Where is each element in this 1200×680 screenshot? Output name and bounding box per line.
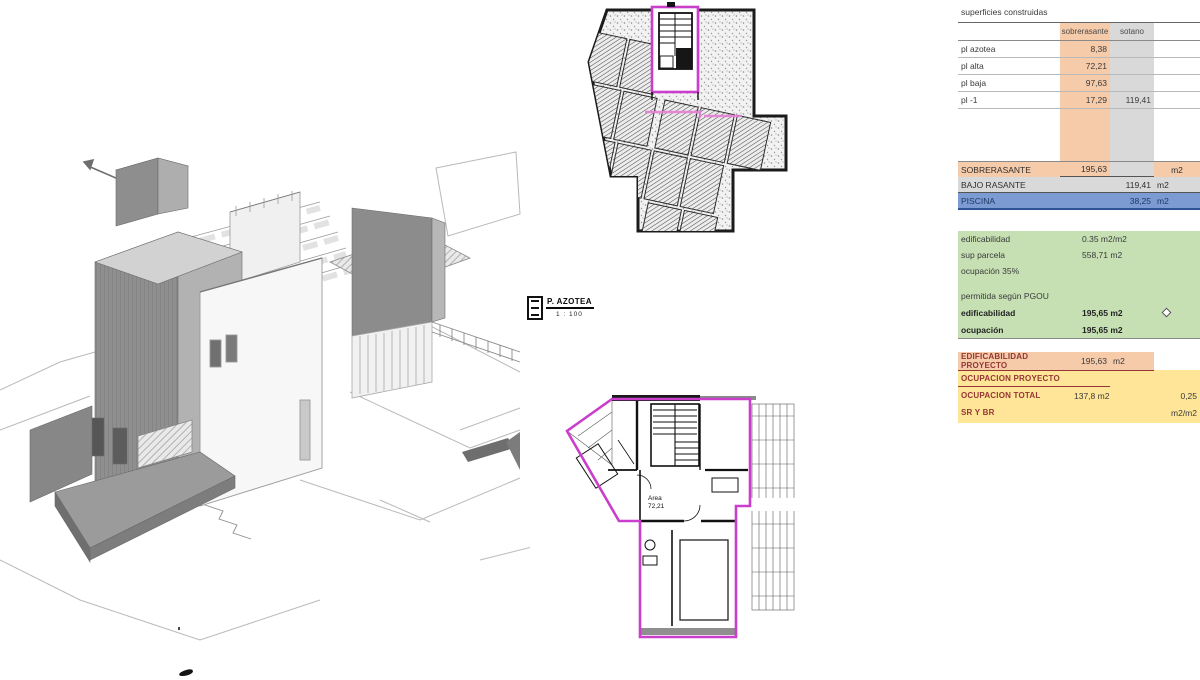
floor-value-sobrerasante[interactable]: 17,29 [1060,92,1110,108]
empty-cell [1060,404,1154,421]
col-header-sotano[interactable]: sotano [1110,23,1154,40]
normativa-value[interactable]: 195,65 m2 [1060,321,1154,338]
empty-cell [1060,193,1110,208]
col-header-sobrerasante[interactable]: sobrerasante [1060,23,1110,40]
proyecto-label[interactable]: OCUPACION TOTAL [958,387,1060,404]
floor-value-sobrerasante[interactable]: 97,63 [1060,75,1110,91]
empty-cell [1060,177,1110,192]
roof-box [116,158,188,226]
floor-value-sotano[interactable]: 119,41 [1110,92,1154,108]
proyecto-value[interactable]: 137,8 m2 [1060,387,1154,404]
plan-scale: 1 : 100 [556,311,594,318]
axonometric-3d-view [0,150,530,680]
empty-cell [1154,92,1200,108]
normativa-label[interactable]: permitida según PGOU [958,288,1060,304]
normativa-value[interactable] [1060,263,1154,279]
proyecto-label[interactable]: OCUPACION PROYECTO [958,370,1110,387]
table-row: pl azotea 8,38 [958,41,1200,58]
empty-cell [1154,75,1200,91]
spacer-row [958,109,1200,161]
floor-label[interactable]: pl baja [958,75,1060,91]
proyecto-extra[interactable]: 0,25 [1154,387,1200,404]
table-row: sup parcela 558,71 m2 [958,247,1200,263]
total-row-sobrerasante: SOBRERASANTE 195,63 m2 [958,161,1200,177]
total-value[interactable]: 195,63 [1060,162,1110,177]
table-row: pl -1 17,29 119,41 [958,92,1200,109]
floor-value-sotano[interactable] [1110,41,1154,57]
floor-label[interactable]: pl -1 [958,92,1060,108]
normativa-label[interactable]: ocupación [958,321,1060,338]
empty-cell [1154,109,1200,161]
legend-stair-icon [527,296,543,320]
empty-cell [1154,263,1200,279]
roof-plan [560,0,800,245]
empty-cell [1060,109,1110,161]
normativa-value[interactable]: 0.35 m2/m2 [1060,231,1154,247]
total-value[interactable]: 119,41 [1110,177,1154,192]
total-value[interactable]: 38,25 [1110,193,1154,208]
table-row: ocupación 35% [958,263,1200,279]
proyecto-row-ocupacion: OCUPACION PROYECTO [958,370,1200,387]
floor-value-sotano[interactable] [1110,58,1154,74]
area-value: 72,21 [648,503,665,510]
empty-cell [1154,288,1200,304]
total-unit: m2 [1154,162,1200,177]
table-row: ocupación 195,65 m2 [958,321,1200,338]
proyecto-row-srybr: SR Y BR m2/m2 [958,404,1200,423]
empty-cell [958,23,1060,40]
normativa-value[interactable]: 558,71 m2 [1060,247,1154,263]
total-unit: m2 [1154,177,1200,192]
total-row-bajorasante: BAJO RASANTE 119,41 m2 [958,177,1200,193]
empty-cell [1154,41,1200,57]
empty-cell [1154,58,1200,74]
floor-value-sotano[interactable] [1110,75,1154,91]
bottom-wall-gray [640,628,737,635]
areas-table: superficies construidas sobrerasante sot… [958,4,1200,423]
gap [958,210,1200,231]
normativa-value[interactable]: 195,65 m2 [1060,304,1154,321]
cursor-cell [1154,304,1200,321]
total-label[interactable]: PISCINA [958,193,1060,208]
floating-wall [352,208,445,336]
empty-cell [1154,231,1200,247]
column-header-row: sobrerasante sotano [958,23,1200,41]
floor-label[interactable]: pl alta [958,58,1060,74]
proyecto-label[interactable]: SR Y BR [958,404,1060,421]
floor-value-sobrerasante[interactable]: 8,38 [1060,41,1110,57]
total-row-piscina: PISCINA 38,25 m2 [958,193,1200,210]
table-title: superficies construidas [958,4,1154,20]
railings [432,322,520,362]
normativa-value[interactable] [1060,288,1154,304]
proyecto-row-ocupacion-total: OCUPACION TOTAL 137,8 m2 0,25 [958,387,1200,404]
area-label: Area [648,495,662,502]
table-title-row: superficies construidas [958,4,1200,23]
normativa-block: edificabilidad 0.35 m2/m2 sup parcela 55… [958,231,1200,339]
floor-plan: Area 72,21 [555,390,805,645]
plan-title: P. AZOTEA [546,297,594,309]
normativa-label[interactable]: edificabilidad [958,231,1060,247]
steps-outline [205,505,251,539]
empty-cell [1154,247,1200,263]
proyecto-unit: m2 [1110,352,1154,371]
empty-cell [1110,162,1154,177]
gap [958,339,1200,352]
deck-break [749,498,797,511]
empty-cell [1154,321,1200,338]
table-row: pl alta 72,21 [958,58,1200,75]
empty-cell [958,109,1060,161]
total-label[interactable]: SOBRERASANTE [958,162,1060,177]
gap [958,279,1200,288]
normativa-label[interactable]: edificabilidad [958,304,1060,321]
table-row: edificabilidad 195,65 m2 [958,304,1200,321]
table-row: pl baja 97,63 [958,75,1200,92]
proyecto-row-edificabilidad: EDIFICABILIDAD PROYECTO 195,63 m2 [958,352,1200,370]
empty-cell [1110,109,1154,161]
floor-value-sobrerasante[interactable]: 72,21 [1060,58,1110,74]
empty-cell [1154,23,1200,40]
table-row: permitida según PGOU [958,288,1200,304]
proyecto-label[interactable]: EDIFICABILIDAD PROYECTO [958,352,1060,371]
cursor-diamond-icon [1162,308,1172,318]
normativa-label[interactable]: sup parcela [958,247,1060,263]
normativa-label[interactable]: ocupación 35% [958,263,1060,279]
table-row: edificabilidad 0.35 m2/m2 [958,231,1200,247]
empty-cell [1154,370,1200,387]
empty-cell [1110,370,1154,387]
ink-dot [178,627,180,630]
total-label[interactable]: BAJO RASANTE [958,177,1060,192]
plan-legend: P. AZOTEA 1 : 100 [527,296,594,320]
empty-cell [1154,352,1200,371]
proyecto-extra[interactable]: m2/m2 [1154,404,1200,421]
floor-label[interactable]: pl azotea [958,41,1060,57]
proyecto-value[interactable]: 195,63 [1060,352,1110,371]
stair-core [652,2,698,100]
total-unit: m2 [1154,193,1200,208]
empty-cell [1154,4,1200,20]
dark-ground-slabs [462,432,520,470]
